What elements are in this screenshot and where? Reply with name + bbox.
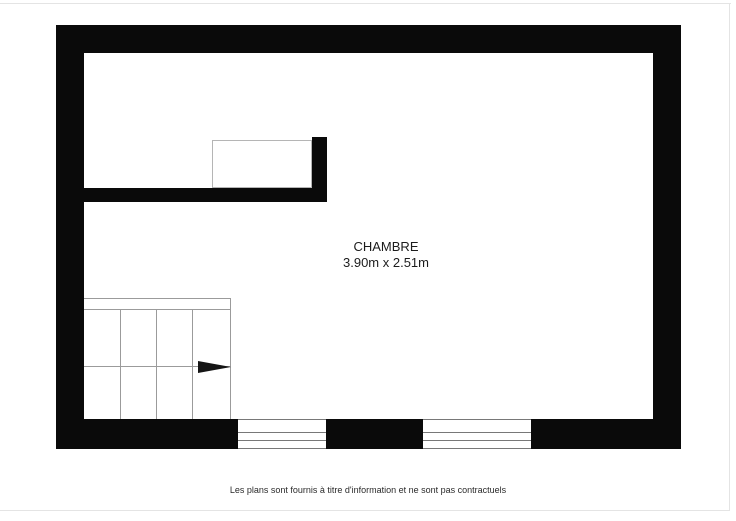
page-border-top <box>0 3 731 4</box>
stair-tread-line <box>120 309 121 419</box>
window-glass-line <box>423 440 531 441</box>
stair-tread-line <box>192 309 193 419</box>
wall-right <box>653 25 681 449</box>
stairs-direction-arrow-icon <box>198 361 231 373</box>
wall-bottom-segment-left <box>56 419 238 449</box>
room-dimensions: 3.90m x 2.51m <box>296 255 476 271</box>
wall-niche-outline <box>212 140 312 188</box>
window-1 <box>238 419 326 449</box>
window-glass-line <box>423 432 531 433</box>
page-border-bottom <box>0 510 730 511</box>
window-frame-line <box>423 448 531 449</box>
wall-partition-horizontal <box>84 188 312 202</box>
window-glass-line <box>238 432 326 433</box>
wall-top <box>56 25 681 53</box>
stair-tread-line <box>84 298 231 299</box>
window-frame-line <box>423 419 531 420</box>
staircase <box>84 298 231 419</box>
window-frame-line <box>238 448 326 449</box>
wall-bottom-segment-right <box>531 419 681 449</box>
stair-edge-line <box>230 298 231 419</box>
wall-left <box>56 25 84 449</box>
stair-tread-line <box>156 309 157 419</box>
floor-plan-page: CHAMBRE 3.90m x 2.51m Les plans sont fou… <box>0 0 736 521</box>
wall-partition-vertical <box>312 137 327 202</box>
wall-bottom-segment-middle <box>326 419 423 449</box>
disclaimer-text: Les plans sont fournis à titre d'informa… <box>0 485 736 496</box>
room-label: CHAMBRE <box>296 239 476 255</box>
window-2 <box>423 419 531 449</box>
window-frame-line <box>238 419 326 420</box>
stair-tread-line <box>84 309 231 310</box>
window-glass-line <box>238 440 326 441</box>
page-border-right <box>729 3 730 511</box>
